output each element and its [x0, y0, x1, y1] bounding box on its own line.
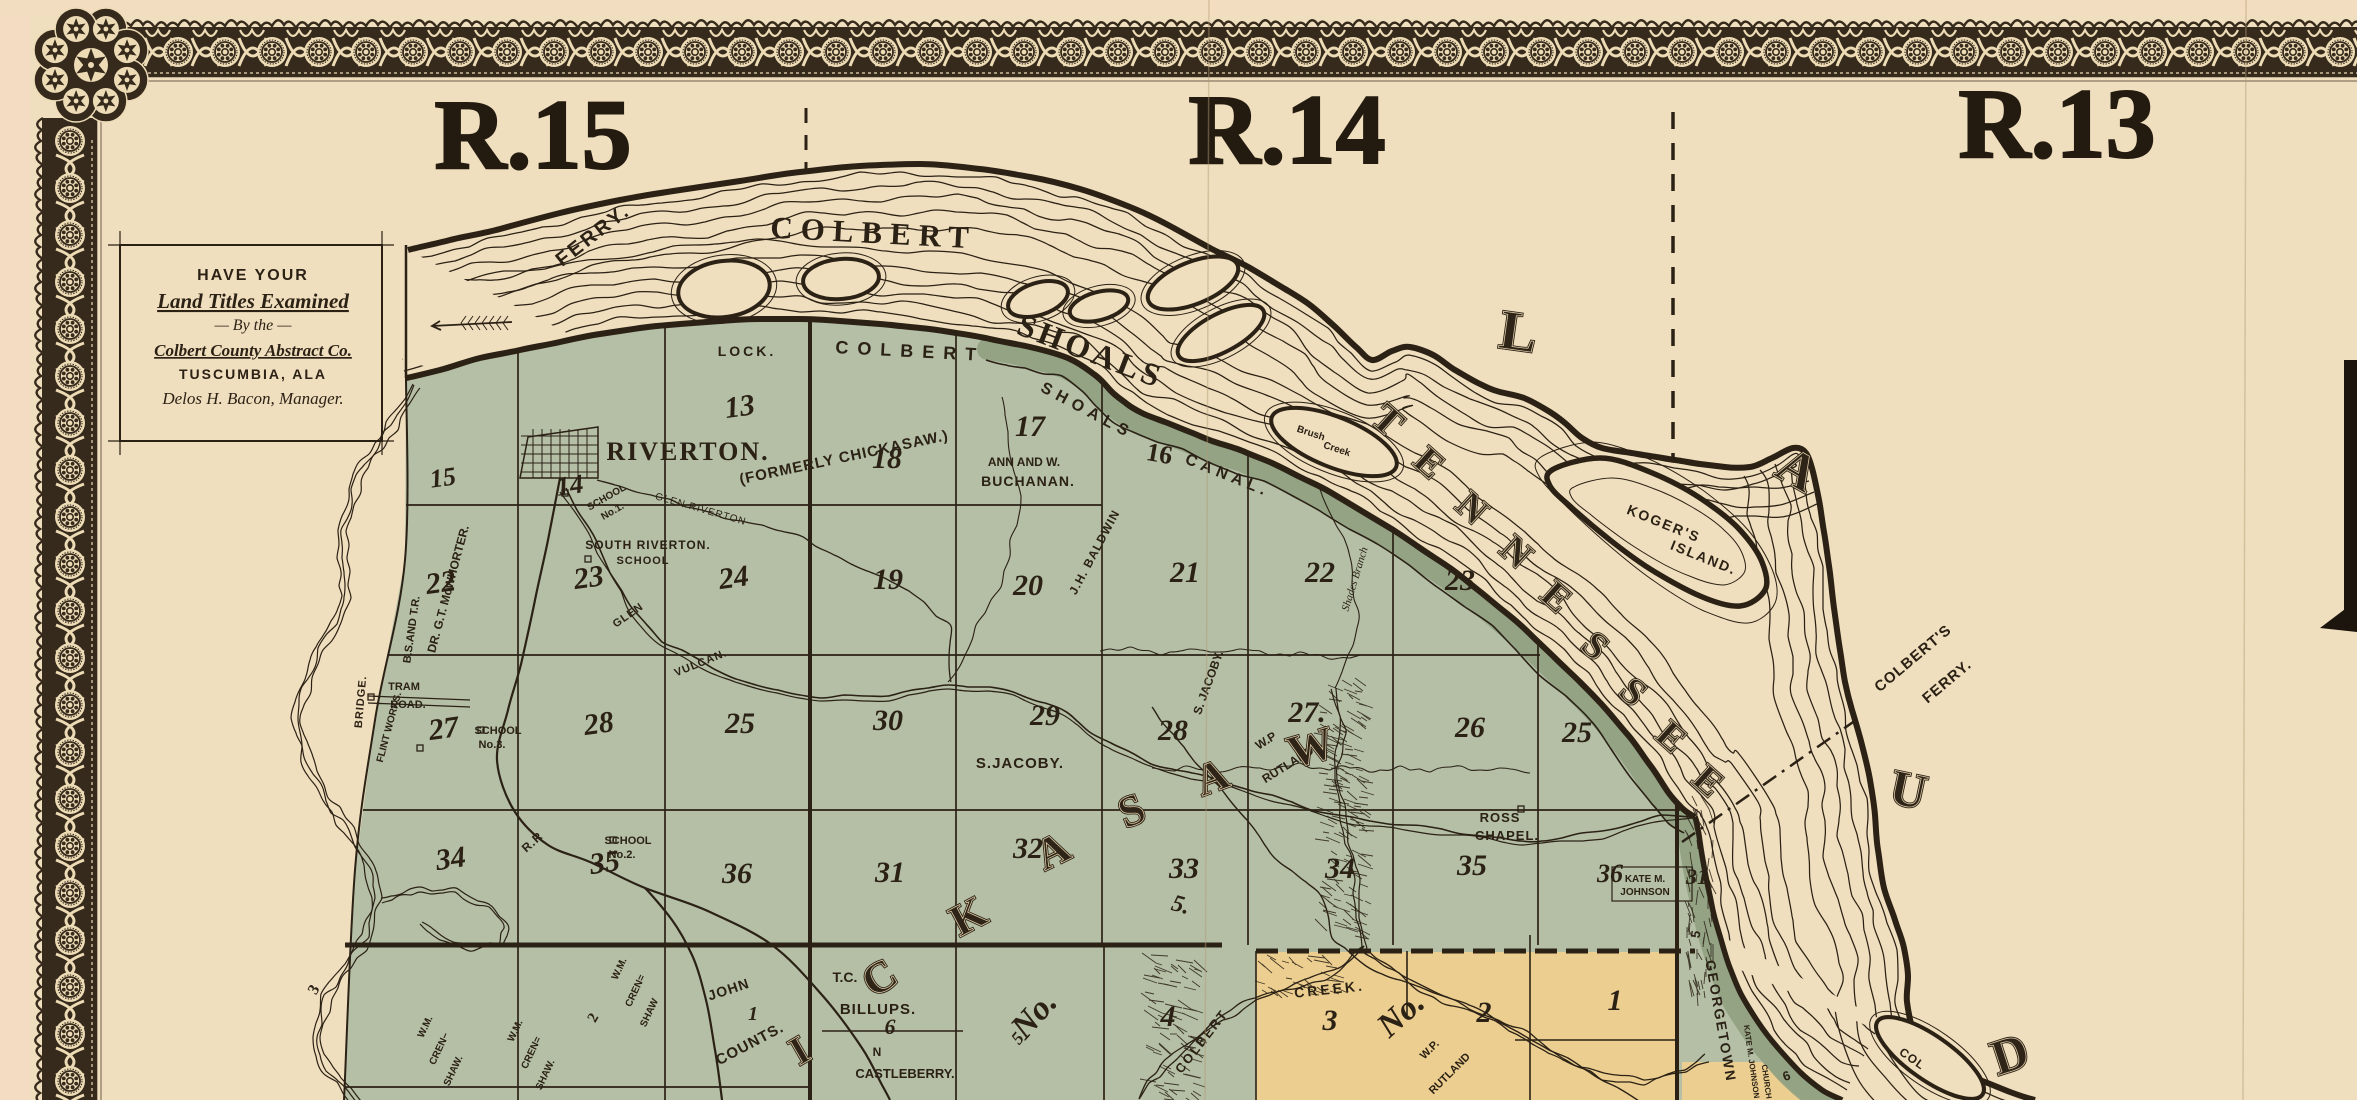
- svg-text:35: 35: [1456, 849, 1487, 882]
- svg-text:SOUTH RIVERTON.: SOUTH RIVERTON.: [585, 538, 710, 552]
- svg-text:R.14: R.14: [1188, 74, 1385, 185]
- svg-text:1: 1: [748, 1003, 758, 1025]
- svg-text:Land Titles Examined: Land Titles Examined: [156, 289, 349, 313]
- svg-text:21: 21: [1169, 556, 1200, 589]
- svg-text:HAVE YOUR: HAVE YOUR: [197, 267, 309, 284]
- svg-text:22: 22: [1304, 556, 1335, 589]
- svg-text:22: 22: [423, 564, 458, 601]
- svg-text:— By the —: — By the —: [214, 317, 293, 334]
- svg-text:31: 31: [1685, 864, 1708, 889]
- svg-text:16: 16: [1144, 437, 1175, 470]
- svg-text:Colbert County Abstract Co.: Colbert County Abstract Co.: [154, 341, 352, 360]
- svg-text:1: 1: [1608, 984, 1623, 1017]
- svg-text:26: 26: [1454, 711, 1485, 744]
- svg-text:23: 23: [571, 559, 606, 596]
- svg-text:Delos H. Bacon, Manager.: Delos H. Bacon, Manager.: [161, 389, 343, 408]
- svg-text:R.15: R.15: [434, 79, 631, 190]
- svg-text:30: 30: [872, 704, 903, 737]
- svg-text:ANN AND W.: ANN AND W.: [988, 455, 1060, 469]
- svg-text:33: 33: [1168, 852, 1199, 885]
- svg-text:N: N: [873, 1045, 882, 1059]
- svg-text:25: 25: [1561, 716, 1592, 749]
- svg-text:29: 29: [1029, 699, 1060, 732]
- svg-text:19: 19: [873, 563, 903, 596]
- svg-text:No.3.: No.3.: [479, 739, 506, 751]
- svg-text:36: 36: [721, 857, 752, 890]
- svg-text:27: 27: [426, 710, 462, 747]
- svg-text:ROSS: ROSS: [1480, 810, 1521, 825]
- svg-text:T.C.: T.C.: [833, 969, 858, 985]
- svg-text:18: 18: [872, 442, 902, 475]
- svg-text:34: 34: [1324, 852, 1355, 885]
- svg-text:28: 28: [1157, 714, 1188, 747]
- svg-text:34: 34: [433, 840, 468, 877]
- svg-text:17: 17: [1015, 410, 1046, 443]
- svg-text:24: 24: [716, 559, 751, 596]
- svg-text:R.13: R.13: [1958, 68, 2155, 179]
- svg-text:CHAPEL.: CHAPEL.: [1475, 828, 1539, 843]
- svg-text:14: 14: [554, 468, 585, 501]
- svg-text:3: 3: [1322, 1004, 1338, 1037]
- svg-text:LOCK.: LOCK.: [718, 343, 777, 359]
- svg-text:No.2.: No.2.: [609, 849, 636, 861]
- svg-text:25: 25: [724, 707, 755, 740]
- svg-text:BUCHANAN.: BUCHANAN.: [981, 473, 1075, 489]
- svg-text:RIVERTON.: RIVERTON.: [606, 437, 769, 466]
- svg-text:S.JACOBY.: S.JACOBY.: [976, 755, 1064, 772]
- svg-text:SCHOOL: SCHOOL: [616, 555, 669, 567]
- svg-text:13: 13: [723, 388, 757, 425]
- svg-text:KATE M.: KATE M.: [1625, 874, 1666, 885]
- svg-text:4: 4: [1160, 1000, 1176, 1033]
- svg-text:2: 2: [1476, 996, 1492, 1029]
- svg-text:6: 6: [885, 1014, 896, 1039]
- svg-text:TUSCUMBIA, ALA: TUSCUMBIA, ALA: [179, 366, 327, 382]
- svg-text:JOHNSON: JOHNSON: [1620, 887, 1669, 898]
- svg-text:23: 23: [1444, 564, 1475, 597]
- svg-text:28: 28: [581, 705, 616, 742]
- svg-text:36: 36: [1596, 859, 1623, 888]
- svg-text:CASTLEBERRY.: CASTLEBERRY.: [855, 1066, 954, 1081]
- svg-text:20: 20: [1012, 569, 1043, 602]
- svg-text:31: 31: [874, 856, 905, 889]
- svg-text:15: 15: [428, 461, 458, 493]
